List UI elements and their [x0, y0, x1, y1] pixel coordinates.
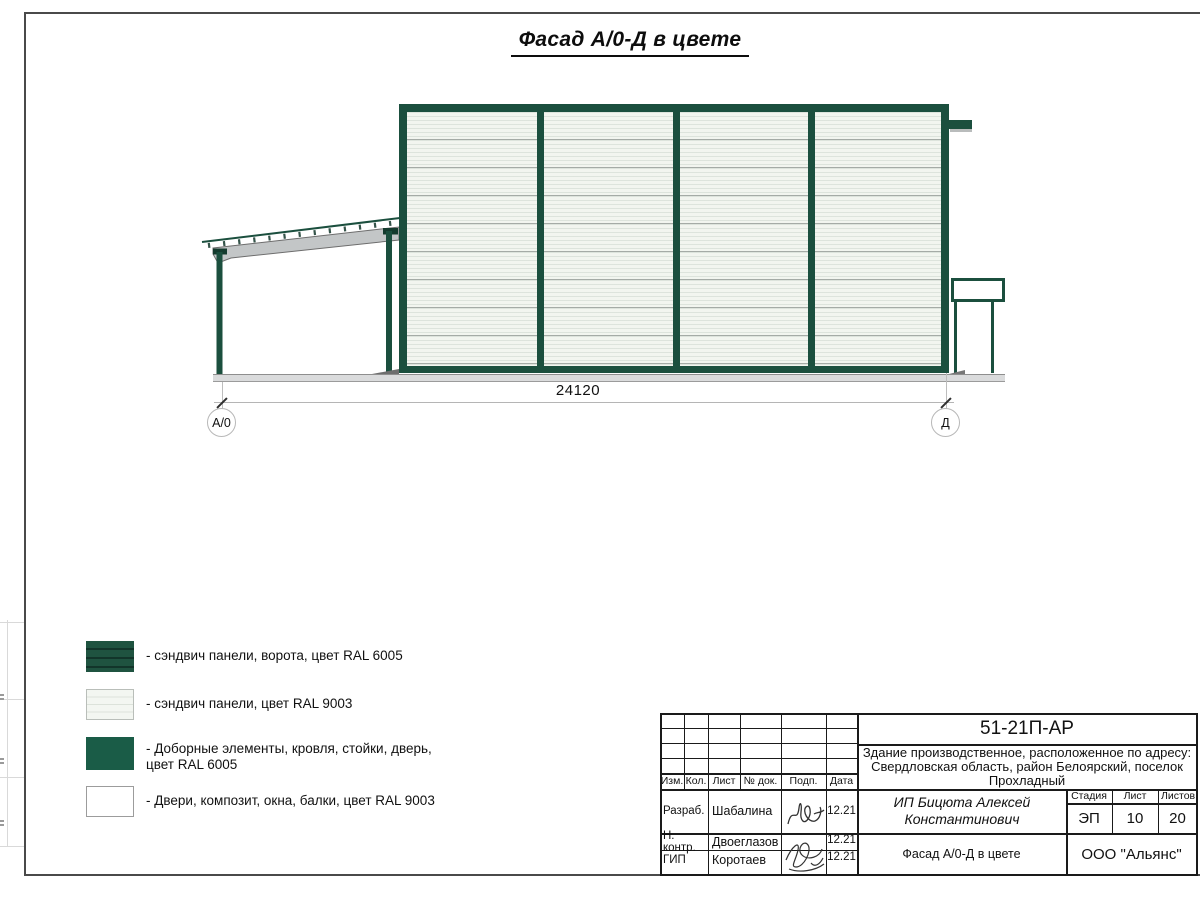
tb-header-kol: Кол.: [684, 773, 708, 789]
signature-scribble: [782, 827, 828, 873]
roof-trim-tab: [946, 120, 972, 129]
sheets-total-header: Листов: [1158, 789, 1199, 803]
sig-date: 12.21: [826, 789, 857, 833]
sheet-frame-top: [24, 12, 1200, 14]
legend-swatch-solid-green: [86, 737, 134, 770]
organization-name: ООО "Альянс": [1066, 833, 1197, 875]
sheet-no-value: 10: [1112, 803, 1158, 833]
sig-name: Шабалина: [712, 789, 780, 833]
facade-mullion: [673, 112, 680, 366]
axis-marker-left: А/0: [207, 408, 236, 437]
axis-marker-right: Д: [931, 408, 960, 437]
porch-beam-box: [951, 278, 1005, 302]
canopy-right-post: [386, 231, 392, 374]
sheets-total-value: 20: [1158, 803, 1197, 833]
sig-role: Разраб.: [663, 789, 707, 833]
legend-label: - сэндвич панели, ворота, цвет RAL 6005: [146, 648, 486, 664]
drawing-sheet: Фасад А/0-Д в цвете 24120 А/0 Д: [0, 0, 1200, 900]
tb-header-podp: Подп.: [781, 773, 826, 789]
legend-label: - Доборные элементы, кровля, стойки, две…: [146, 741, 451, 773]
sig-role: ГИП: [663, 850, 709, 870]
drawing-title: Фасад А/0-Д в цвете: [859, 834, 1064, 874]
canopy-structure: [192, 205, 422, 380]
canopy-left-post: [217, 252, 223, 374]
tb-header-izm: Изм.: [660, 773, 684, 789]
sheet-frame-left: [24, 12, 26, 876]
facade-mullion: [537, 112, 544, 366]
axis-marker-right-label: Д: [941, 416, 949, 430]
building-facade: [399, 104, 949, 373]
facade-mullion: [808, 112, 815, 366]
legend-swatch-panel-white: [86, 689, 134, 720]
legend-label: - сэндвич панели, цвет RAL 9003: [146, 696, 486, 712]
sig-name: Коротаев: [712, 850, 780, 870]
tb-header-list: Лист: [708, 773, 740, 789]
sig-date: 12.21: [826, 848, 857, 865]
legend-swatch-white: [86, 786, 134, 817]
sig-date: 12.21: [826, 831, 857, 848]
sig-role: Н. контр.: [663, 833, 709, 850]
dimension-label: 24120: [528, 382, 628, 399]
roof-trim-tab-shadow: [950, 129, 972, 132]
porch-post-right: [991, 302, 994, 373]
axis-marker-left-label: А/0: [212, 416, 231, 430]
ground-shadow-wedge: [949, 370, 965, 374]
porch-post-left: [954, 302, 957, 373]
stage-value: ЭП: [1066, 803, 1112, 833]
page-title-wrap: Фасад А/0-Д в цвете: [410, 28, 850, 57]
stage-header: Стадия: [1066, 789, 1112, 803]
dimension-line: [214, 402, 954, 403]
client-name: ИП Бицюта Алексей Константинович: [861, 791, 1063, 831]
page-title: Фасад А/0-Д в цвете: [511, 28, 750, 57]
sheet-no-header: Лист: [1112, 789, 1158, 803]
tb-header-data: Дата: [826, 773, 857, 789]
sandwich-panel-wall: [407, 112, 941, 366]
ground-strip: [213, 374, 1005, 382]
extension-line-right: [946, 373, 947, 412]
legend-label: - Двери, композит, окна, балки, цвет RAL…: [146, 793, 486, 809]
project-address-line: Свердловская область, район Белоярский, …: [857, 759, 1197, 774]
doc-number: 51-21П-АР: [857, 713, 1197, 744]
legend-swatch-gate-green: [86, 641, 134, 672]
project-address-line: Прохладный: [857, 773, 1197, 788]
tb-header-doc: № док.: [740, 773, 781, 789]
project-address-line: Здание производственное, расположенное п…: [857, 745, 1197, 760]
sig-name: Двоеглазов: [712, 833, 780, 850]
canopy-beam: [213, 227, 399, 263]
